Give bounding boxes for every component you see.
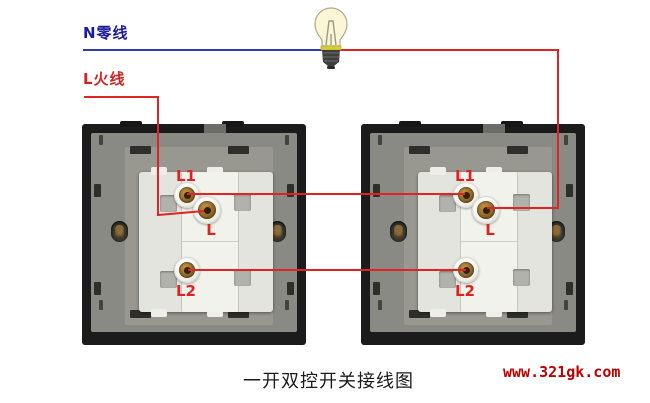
terminal-hole xyxy=(184,267,191,274)
terminal-screw xyxy=(179,262,195,278)
module-cutout xyxy=(234,269,251,286)
plate-slot xyxy=(409,146,430,154)
plate-slot xyxy=(564,135,568,145)
switch-panel-right: L1 L L2 xyxy=(361,124,585,345)
terminal-L xyxy=(193,196,221,224)
terminal-L2 xyxy=(453,257,479,283)
watermark-url: www.321gk.com xyxy=(503,363,620,381)
terminal-hole xyxy=(204,207,211,214)
terminal-label-L: L xyxy=(485,221,495,239)
light-bulb-icon xyxy=(309,6,353,70)
screw xyxy=(552,225,561,238)
plate-slot xyxy=(285,300,289,310)
frame-clip xyxy=(399,121,421,127)
plate-slot xyxy=(566,184,573,197)
plate-slot xyxy=(507,146,528,154)
plate-slot xyxy=(378,135,382,145)
screw-hole-left xyxy=(111,221,128,242)
terminal-label-L: L xyxy=(206,221,216,239)
terminal-label-L2: L2 xyxy=(176,282,196,300)
terminal-label-L2: L2 xyxy=(455,282,475,300)
module-clip xyxy=(151,309,167,317)
terminal-L2 xyxy=(174,257,200,283)
screw xyxy=(115,225,124,238)
plate-slot xyxy=(285,135,289,145)
module-clip xyxy=(430,167,446,175)
plate-slot xyxy=(99,300,103,310)
terminal-screw xyxy=(198,201,216,219)
mechanism-seam xyxy=(182,241,238,242)
mounting-plate xyxy=(91,133,297,332)
live-wire-label: L火线 xyxy=(83,68,126,89)
mounting-plate xyxy=(370,133,576,332)
plate-slot xyxy=(373,184,380,197)
terminal-label-L1: L1 xyxy=(176,167,196,185)
screw xyxy=(273,225,282,238)
frame-notch xyxy=(204,124,226,133)
screw xyxy=(394,225,403,238)
terminal-screw xyxy=(179,187,195,203)
plate-slot xyxy=(566,282,573,295)
module-clip xyxy=(151,167,167,175)
screw-hole-left xyxy=(390,221,407,242)
terminal-label-L1: L1 xyxy=(455,167,475,185)
frame-notch xyxy=(483,124,505,133)
neutral-wire-label: N零线 xyxy=(83,22,129,43)
plate-slot xyxy=(378,300,382,310)
wiring-diagram: N零线 L火线 xyxy=(0,0,650,403)
mechanism-seam xyxy=(461,241,517,242)
terminal-hole xyxy=(463,267,470,274)
switch-module xyxy=(418,172,552,312)
terminal-hole xyxy=(483,207,490,214)
plate-slot xyxy=(564,300,568,310)
plate-slot xyxy=(94,282,101,295)
switch-module xyxy=(139,172,273,312)
module-cutout xyxy=(513,194,530,211)
terminal-hole xyxy=(463,192,470,199)
plate-slot xyxy=(228,146,249,154)
plate-slot xyxy=(287,184,294,197)
switch-panel-left: L1 L L2 xyxy=(82,124,306,345)
plate-slot xyxy=(130,146,151,154)
module-cutout xyxy=(234,194,251,211)
plate-slot xyxy=(99,135,103,145)
terminal-L xyxy=(472,196,500,224)
plate-slot xyxy=(94,184,101,197)
diagram-title: 一开双控开关接线图 xyxy=(243,367,414,393)
plate-slot xyxy=(287,282,294,295)
terminal-screw xyxy=(458,262,474,278)
frame-clip xyxy=(120,121,142,127)
plate-slot xyxy=(373,282,380,295)
terminal-screw xyxy=(458,187,474,203)
module-cutout xyxy=(513,269,530,286)
terminal-screw xyxy=(477,201,495,219)
terminal-hole xyxy=(184,192,191,199)
module-clip xyxy=(430,309,446,317)
